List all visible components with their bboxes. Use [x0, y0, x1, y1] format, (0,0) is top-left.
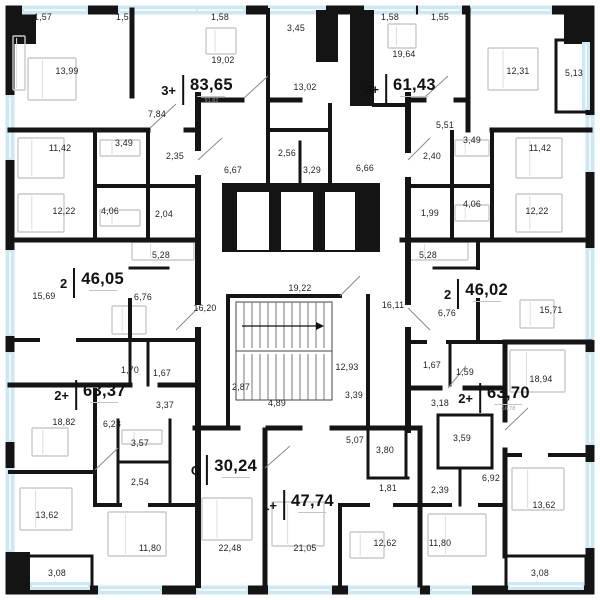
room-area-label: 1,58 [211, 12, 229, 22]
room-area-label: 6,67 [224, 165, 242, 175]
room-area-label: 3,39 [345, 390, 363, 400]
apartment-label-divider [206, 455, 208, 485]
room-area-label: 19,64 [392, 49, 415, 59]
room-area-label: 6,28 [103, 419, 121, 429]
room-area-label: 21,05 [293, 543, 316, 553]
room-area-label: 1,70 [121, 365, 139, 375]
apartment-label: 3+83,6591,82 [161, 75, 233, 105]
room-area-label: 4,89 [268, 398, 286, 408]
room-area-label: 13,62 [532, 500, 555, 510]
apartment-rooms-count: 1+ [262, 498, 277, 513]
room-area-label: 6,92 [482, 473, 500, 483]
room-area-label: 3,08 [531, 568, 549, 578]
room-area-label: 13,62 [35, 510, 58, 520]
room-area-label: 11,80 [139, 543, 161, 553]
apartment-total-area [298, 512, 326, 518]
room-area-label: 1,55 [431, 12, 449, 22]
room-area-label: 7,84 [148, 109, 166, 119]
room-area-label: 3,80 [376, 445, 394, 455]
apartment-area: 47,74 [291, 492, 334, 511]
apartment-total-area [473, 301, 501, 307]
room-area-label: 16,20 [193, 303, 216, 313]
room-area-label: 16,11 [382, 300, 404, 310]
room-area-label: 18,82 [52, 417, 75, 427]
room-area-label: 3,29 [303, 165, 321, 175]
room-area-label: 3,08 [48, 568, 66, 578]
room-area-label: 11,42 [49, 143, 71, 153]
apartment-rooms-count: 2+ [54, 388, 69, 403]
room-area-label: 12,93 [335, 362, 358, 372]
room-area-label: 22,48 [218, 543, 241, 553]
apartment-label: 2+63,37 [54, 380, 126, 410]
room-area-label: 6,76 [134, 292, 152, 302]
apartment-area: 63,70 [487, 384, 530, 403]
room-area-label: 12,31 [506, 66, 529, 76]
apartment-rooms-count: 2 [444, 287, 451, 302]
room-area-label: 13,02 [293, 82, 316, 92]
apartment-rooms-count: 2+ [458, 391, 473, 406]
apartment-label-divider [73, 268, 75, 298]
room-area-label: 1,57 [34, 12, 52, 22]
room-area-label: 1,58 [381, 12, 399, 22]
room-area-label: 15,71 [539, 305, 562, 315]
apartment-area: 46,05 [81, 270, 124, 289]
apartment-total-area: 91,82 [197, 96, 225, 104]
room-area-label: 3,57 [131, 438, 149, 448]
room-area-label: 4,06 [101, 206, 119, 216]
apartment-label-divider [182, 75, 184, 105]
apartment-label: 2+63,7066,78 [458, 383, 530, 413]
apartment-label-divider [479, 383, 481, 413]
apartment-label-divider [385, 74, 387, 104]
room-area-label: 2,40 [423, 151, 441, 161]
room-area-label: 12,22 [525, 206, 548, 216]
room-area-label: 5,07 [346, 435, 364, 445]
apartment-total-area [89, 290, 117, 296]
room-area-label: 18,94 [529, 374, 552, 384]
apartment-rooms-count: С [191, 463, 200, 478]
room-area-label: 1,67 [153, 368, 171, 378]
apartment-total-area [400, 96, 428, 102]
floor-plan-canvas: 1,571,571,583,451,581,555,1313,9919,0213… [0, 0, 600, 600]
room-area-label: 3,49 [115, 138, 133, 148]
room-area-label: 13,99 [55, 66, 78, 76]
apartment-label: 246,02 [444, 279, 508, 309]
apartment-area: 83,65 [190, 76, 233, 95]
room-area-label: 5,51 [436, 120, 454, 130]
apartment-area: 30,24 [214, 457, 257, 476]
apartment-area: 63,37 [83, 382, 126, 401]
room-area-label: 1,67 [423, 360, 441, 370]
room-area-label: 19,02 [211, 55, 234, 65]
room-area-label: 2,35 [166, 151, 184, 161]
room-area-label: 2,04 [155, 209, 173, 219]
room-area-label: 1,59 [456, 367, 474, 377]
room-area-label: 2,56 [278, 148, 296, 158]
room-area-label: 11,80 [429, 538, 451, 548]
apartment-total-area [90, 402, 118, 408]
apartment-total-area: 66,78 [494, 404, 522, 412]
apartment-label-divider [75, 380, 77, 410]
room-area-label: 3,45 [287, 23, 305, 33]
room-area-label: 4,06 [463, 199, 481, 209]
apartment-total-area [222, 477, 250, 483]
apartment-label: С30,24 [191, 455, 257, 485]
room-area-label: 6,76 [438, 308, 456, 318]
room-area-label: 5,28 [419, 250, 437, 260]
room-area-label: 12,62 [373, 538, 396, 548]
apartment-label: 1+47,74 [262, 490, 334, 520]
room-area-label: 19,22 [288, 283, 311, 293]
labels-layer: 1,571,571,583,451,581,555,1313,9919,0213… [0, 0, 600, 600]
room-area-label: 3,49 [463, 135, 481, 145]
room-area-label: 11,42 [529, 143, 551, 153]
apartment-rooms-count: 2+ [364, 82, 379, 97]
apartment-label: 246,05 [60, 268, 124, 298]
room-area-label: 15,69 [32, 291, 55, 301]
room-area-label: 1,57 [116, 12, 134, 22]
apartment-label-divider [283, 490, 285, 520]
apartment-area: 61,43 [393, 76, 436, 95]
apartment-area: 46,02 [465, 281, 508, 300]
apartment-label: 2+61,43 [364, 74, 436, 104]
room-area-label: 3,37 [156, 400, 174, 410]
room-area-label: 6,66 [356, 163, 374, 173]
room-area-label: 3,18 [431, 398, 449, 408]
room-area-label: 3,59 [453, 433, 471, 443]
room-area-label: 2,39 [431, 485, 449, 495]
room-area-label: 5,13 [565, 68, 583, 78]
room-area-label: 12,22 [52, 206, 75, 216]
room-area-label: 5,28 [152, 250, 170, 260]
apartment-rooms-count: 2 [60, 276, 67, 291]
room-area-label: 1,81 [379, 483, 397, 493]
room-area-label: 1,99 [421, 208, 439, 218]
room-area-label: 2,87 [232, 382, 250, 392]
apartment-rooms-count: 3+ [161, 83, 176, 98]
room-area-label: 2,54 [131, 477, 149, 487]
apartment-label-divider [457, 279, 459, 309]
